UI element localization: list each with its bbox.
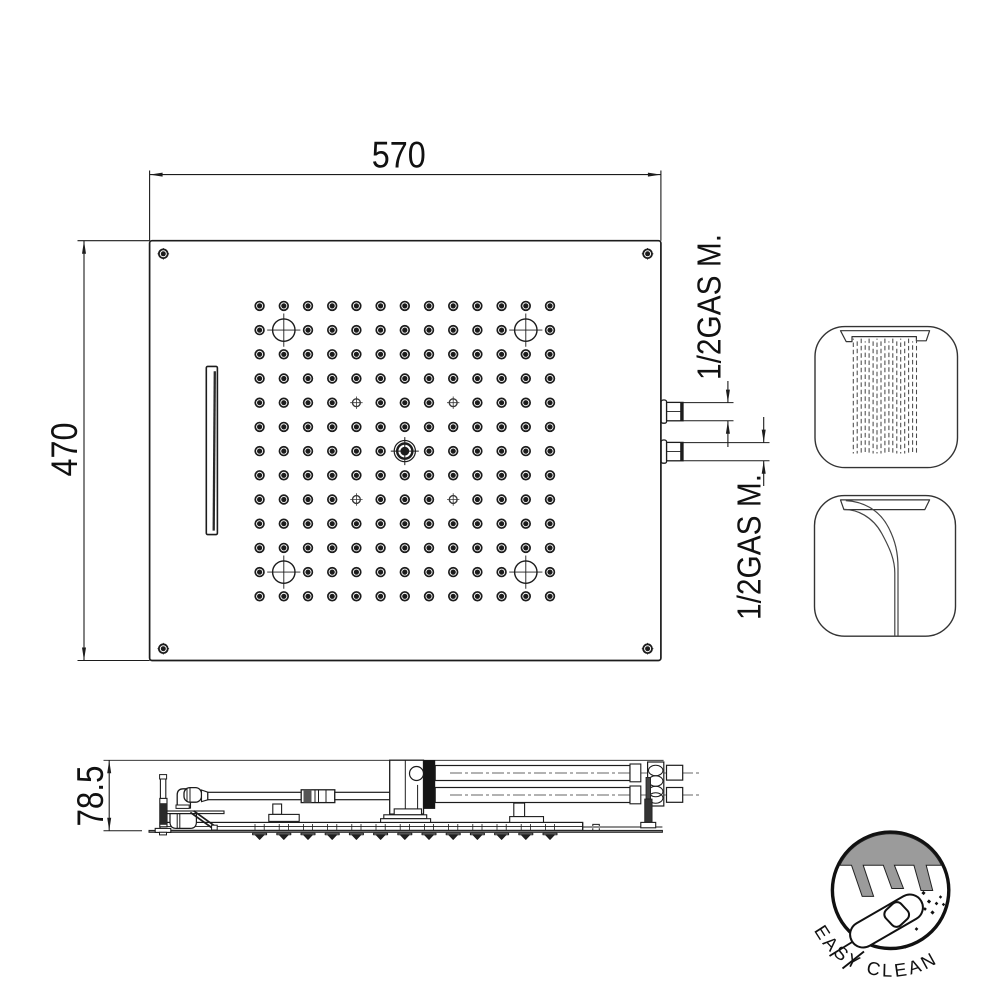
svg-text:1/2GAS M.: 1/2GAS M.: [731, 474, 768, 620]
svg-text:470: 470: [43, 423, 85, 477]
svg-text:570: 570: [372, 133, 426, 175]
svg-text:78.5: 78.5: [69, 766, 111, 827]
svg-text:1/2GAS M.: 1/2GAS M.: [691, 234, 728, 380]
